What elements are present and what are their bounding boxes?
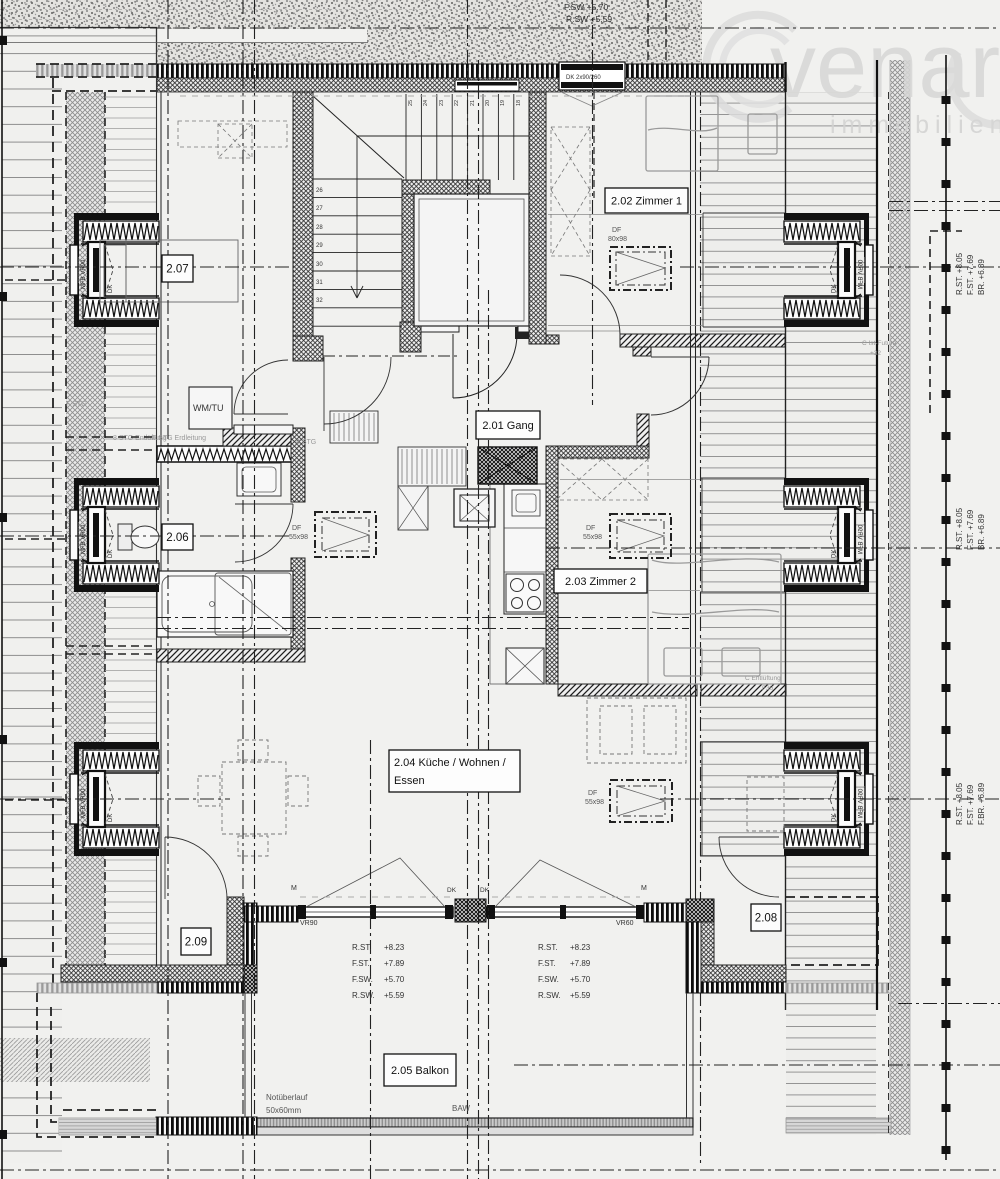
svg-text:80x98: 80x98: [608, 236, 627, 243]
svg-text:immobilien: immobilien: [830, 111, 1000, 139]
svg-text:50x60mm: 50x60mm: [266, 1106, 301, 1115]
svg-text:2.04 Küche / Wohnen /: 2.04 Küche / Wohnen /: [394, 757, 507, 769]
svg-text:2.05 Balkon: 2.05 Balkon: [391, 1065, 449, 1077]
svg-text:+7.89: +7.89: [384, 959, 405, 968]
svg-text:26: 26: [316, 188, 323, 194]
svg-text:R.ST.: R.ST.: [538, 943, 558, 952]
svg-text:R.SW +5.59: R.SW +5.59: [566, 14, 612, 24]
svg-text:2.03 Zimmer 2: 2.03 Zimmer 2: [565, 576, 636, 588]
svg-text:32: 32: [316, 298, 323, 304]
svg-text:R.SW.: R.SW.: [538, 991, 561, 1000]
svg-text:DF: DF: [292, 525, 301, 532]
svg-text:2.09: 2.09: [185, 937, 207, 949]
svg-text:+8.23: +8.23: [570, 943, 591, 952]
svg-text:F30: F30: [762, 685, 774, 692]
svg-text:F.ST. +7.69: F.ST. +7.69: [966, 509, 975, 550]
svg-text:31: 31: [316, 280, 323, 286]
svg-text:21: 21: [470, 100, 476, 106]
svg-text:+8.23: +8.23: [384, 943, 405, 952]
svg-text:F.SW +5.70: F.SW +5.70: [564, 2, 608, 12]
svg-text:20: 20: [485, 100, 491, 106]
svg-text:2.08: 2.08: [755, 913, 777, 925]
svg-text:+5.70: +5.70: [384, 975, 405, 984]
svg-text:DK 2x90/260: DK 2x90/260: [566, 75, 601, 81]
svg-text:M: M: [291, 885, 297, 892]
svg-text:DF: DF: [586, 525, 595, 532]
svg-text:F.ST. +7.69: F.ST. +7.69: [966, 254, 975, 295]
svg-text:R.ST. +8.05: R.ST. +8.05: [955, 782, 964, 825]
svg-text:24: 24: [423, 100, 429, 106]
svg-text:R.ST. +8.05: R.ST. +8.05: [955, 252, 964, 295]
svg-text:F STG Erdleitung: F STG Erdleitung: [152, 435, 206, 442]
svg-text:DK: DK: [480, 887, 490, 894]
svg-text:F.ST. +7.69: F.ST. +7.69: [966, 784, 975, 825]
svg-text:19: 19: [500, 100, 506, 106]
svg-text:WM/TU: WM/TU: [193, 403, 224, 413]
svg-text:+7.89: +7.89: [570, 959, 591, 968]
svg-text:BR. +6.89: BR. +6.89: [977, 514, 986, 550]
svg-text:22: 22: [454, 100, 460, 106]
svg-text:+5.70: +5.70: [570, 975, 591, 984]
svg-text:M: M: [641, 885, 647, 892]
svg-text:R.ST.: R.ST.: [352, 943, 372, 952]
svg-text:DF: DF: [612, 227, 621, 234]
svg-text:2.01 Gang: 2.01 Gang: [482, 420, 533, 432]
svg-text:BAW: BAW: [452, 1104, 470, 1113]
svg-text:F.BR. +6.89: F.BR. +6.89: [977, 782, 986, 825]
svg-text:R.ST. +8.05: R.ST. +8.05: [955, 507, 964, 550]
svg-text:F.SW.: F.SW.: [352, 975, 373, 984]
svg-text:VR60: VR60: [616, 920, 634, 927]
svg-text:25: 25: [408, 100, 414, 106]
svg-text:F.ST.: F.ST.: [352, 959, 370, 968]
svg-text:venaris: venaris: [770, 15, 1000, 117]
svg-text:Essen: Essen: [394, 775, 425, 787]
svg-text:27: 27: [316, 206, 323, 212]
svg-text:+5.59: +5.59: [384, 991, 405, 1000]
svg-text:28: 28: [316, 225, 323, 231]
svg-text:F STG: F STG: [66, 401, 87, 408]
svg-text:55x98: 55x98: [585, 799, 604, 806]
svg-text:55x98: 55x98: [583, 534, 602, 541]
svg-text:8 STG: 8 STG: [296, 439, 316, 446]
svg-text:DK: DK: [447, 887, 457, 894]
svg-text:29: 29: [316, 243, 323, 249]
svg-text:+32: +32: [870, 350, 881, 357]
svg-text:VR90: VR90: [300, 920, 318, 927]
svg-text:R.SW.: R.SW.: [352, 991, 375, 1000]
svg-text:DF: DF: [588, 790, 597, 797]
svg-text:2.07: 2.07: [166, 264, 188, 276]
svg-text:+5.59: +5.59: [570, 991, 591, 1000]
svg-text:Notüberlauf: Notüberlauf: [266, 1093, 308, 1102]
svg-text:30: 30: [316, 262, 323, 268]
svg-text:BR. +6.89: BR. +6.89: [977, 259, 986, 295]
svg-text:C Ist-Futura: C Ist-Futura: [862, 340, 897, 347]
svg-text:C Entlüftung: C Entlüftung: [745, 675, 781, 682]
svg-text:2.02 Zimmer 1: 2.02 Zimmer 1: [611, 196, 682, 208]
svg-text:F.SW.: F.SW.: [538, 975, 559, 984]
svg-text:23: 23: [439, 100, 445, 106]
svg-text:18: 18: [516, 100, 522, 106]
svg-text:2.06: 2.06: [166, 532, 188, 544]
svg-text:55x98: 55x98: [289, 534, 308, 541]
svg-text:F.ST.: F.ST.: [538, 959, 556, 968]
